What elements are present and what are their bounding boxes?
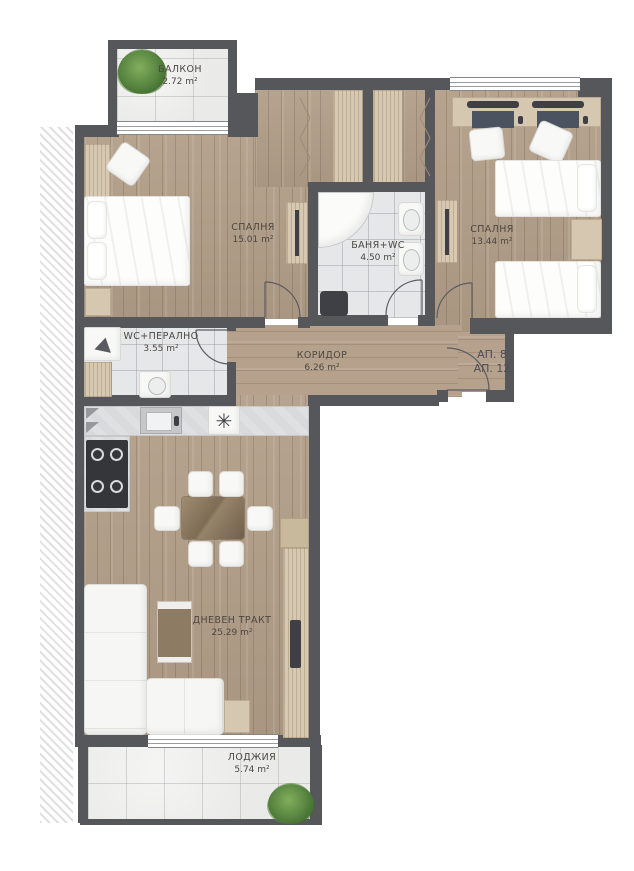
apartment-number-label: АП. 8АП. 12	[462, 348, 522, 376]
door-swings	[0, 0, 634, 871]
closet-rail-symbol	[420, 98, 430, 176]
closet-rail-symbol	[300, 98, 310, 176]
floor-plan: ✳ БАЛКОН2.72 m² СПАЛНЯ15.01 m	[0, 0, 634, 871]
